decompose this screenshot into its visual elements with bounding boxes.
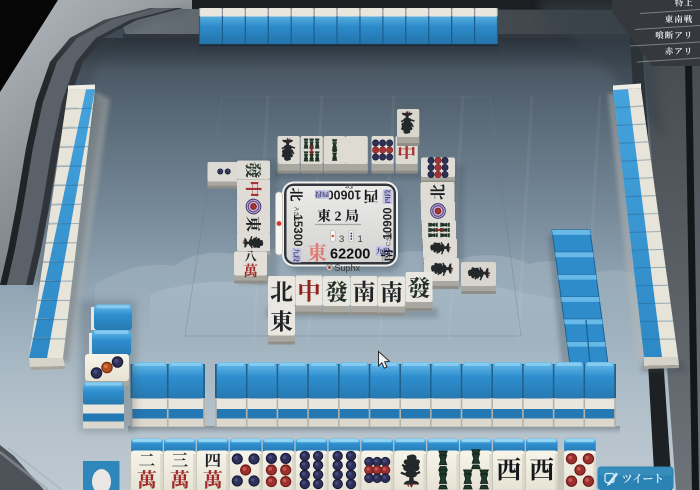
svg-text:C: C [387, 241, 393, 246]
svg-text:1: 1 [358, 234, 363, 245]
svg-text:3: 3 [339, 234, 344, 245]
svg-text:10900: 10900 [383, 208, 395, 240]
svg-text:Suphx: Suphx [335, 263, 361, 273]
svg-text:15300: 15300 [291, 215, 303, 247]
svg-text:10600: 10600 [327, 188, 362, 202]
svg-text:2: 2 [335, 210, 342, 225]
svg-text:62200: 62200 [330, 247, 370, 263]
svg-text:A: A [293, 207, 299, 211]
